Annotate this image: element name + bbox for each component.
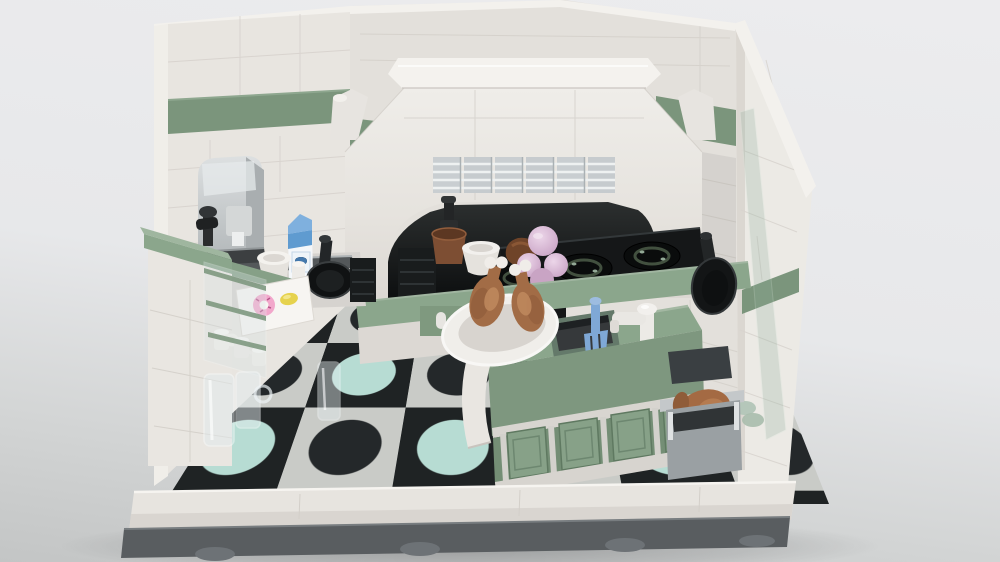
glass-display-case bbox=[204, 262, 266, 378]
model-render bbox=[0, 0, 1000, 562]
base-foot bbox=[739, 535, 775, 547]
glass-bottle bbox=[318, 362, 340, 420]
machine-dispenser bbox=[226, 206, 252, 236]
cabinet-door bbox=[611, 409, 652, 461]
bowl-pedestal bbox=[462, 362, 491, 448]
base-foot bbox=[605, 538, 645, 552]
burner bbox=[624, 242, 680, 270]
corner-grill bbox=[350, 258, 376, 302]
cabinet-door bbox=[559, 418, 600, 470]
hood-cap bbox=[388, 58, 661, 88]
ice-cream-scoop bbox=[528, 226, 558, 256]
base-foot bbox=[400, 542, 440, 556]
dark-tile bbox=[668, 346, 732, 384]
base-foot bbox=[195, 547, 235, 561]
scene bbox=[0, 0, 1000, 562]
inner-grill bbox=[398, 248, 436, 300]
cabinet-door bbox=[507, 427, 548, 479]
